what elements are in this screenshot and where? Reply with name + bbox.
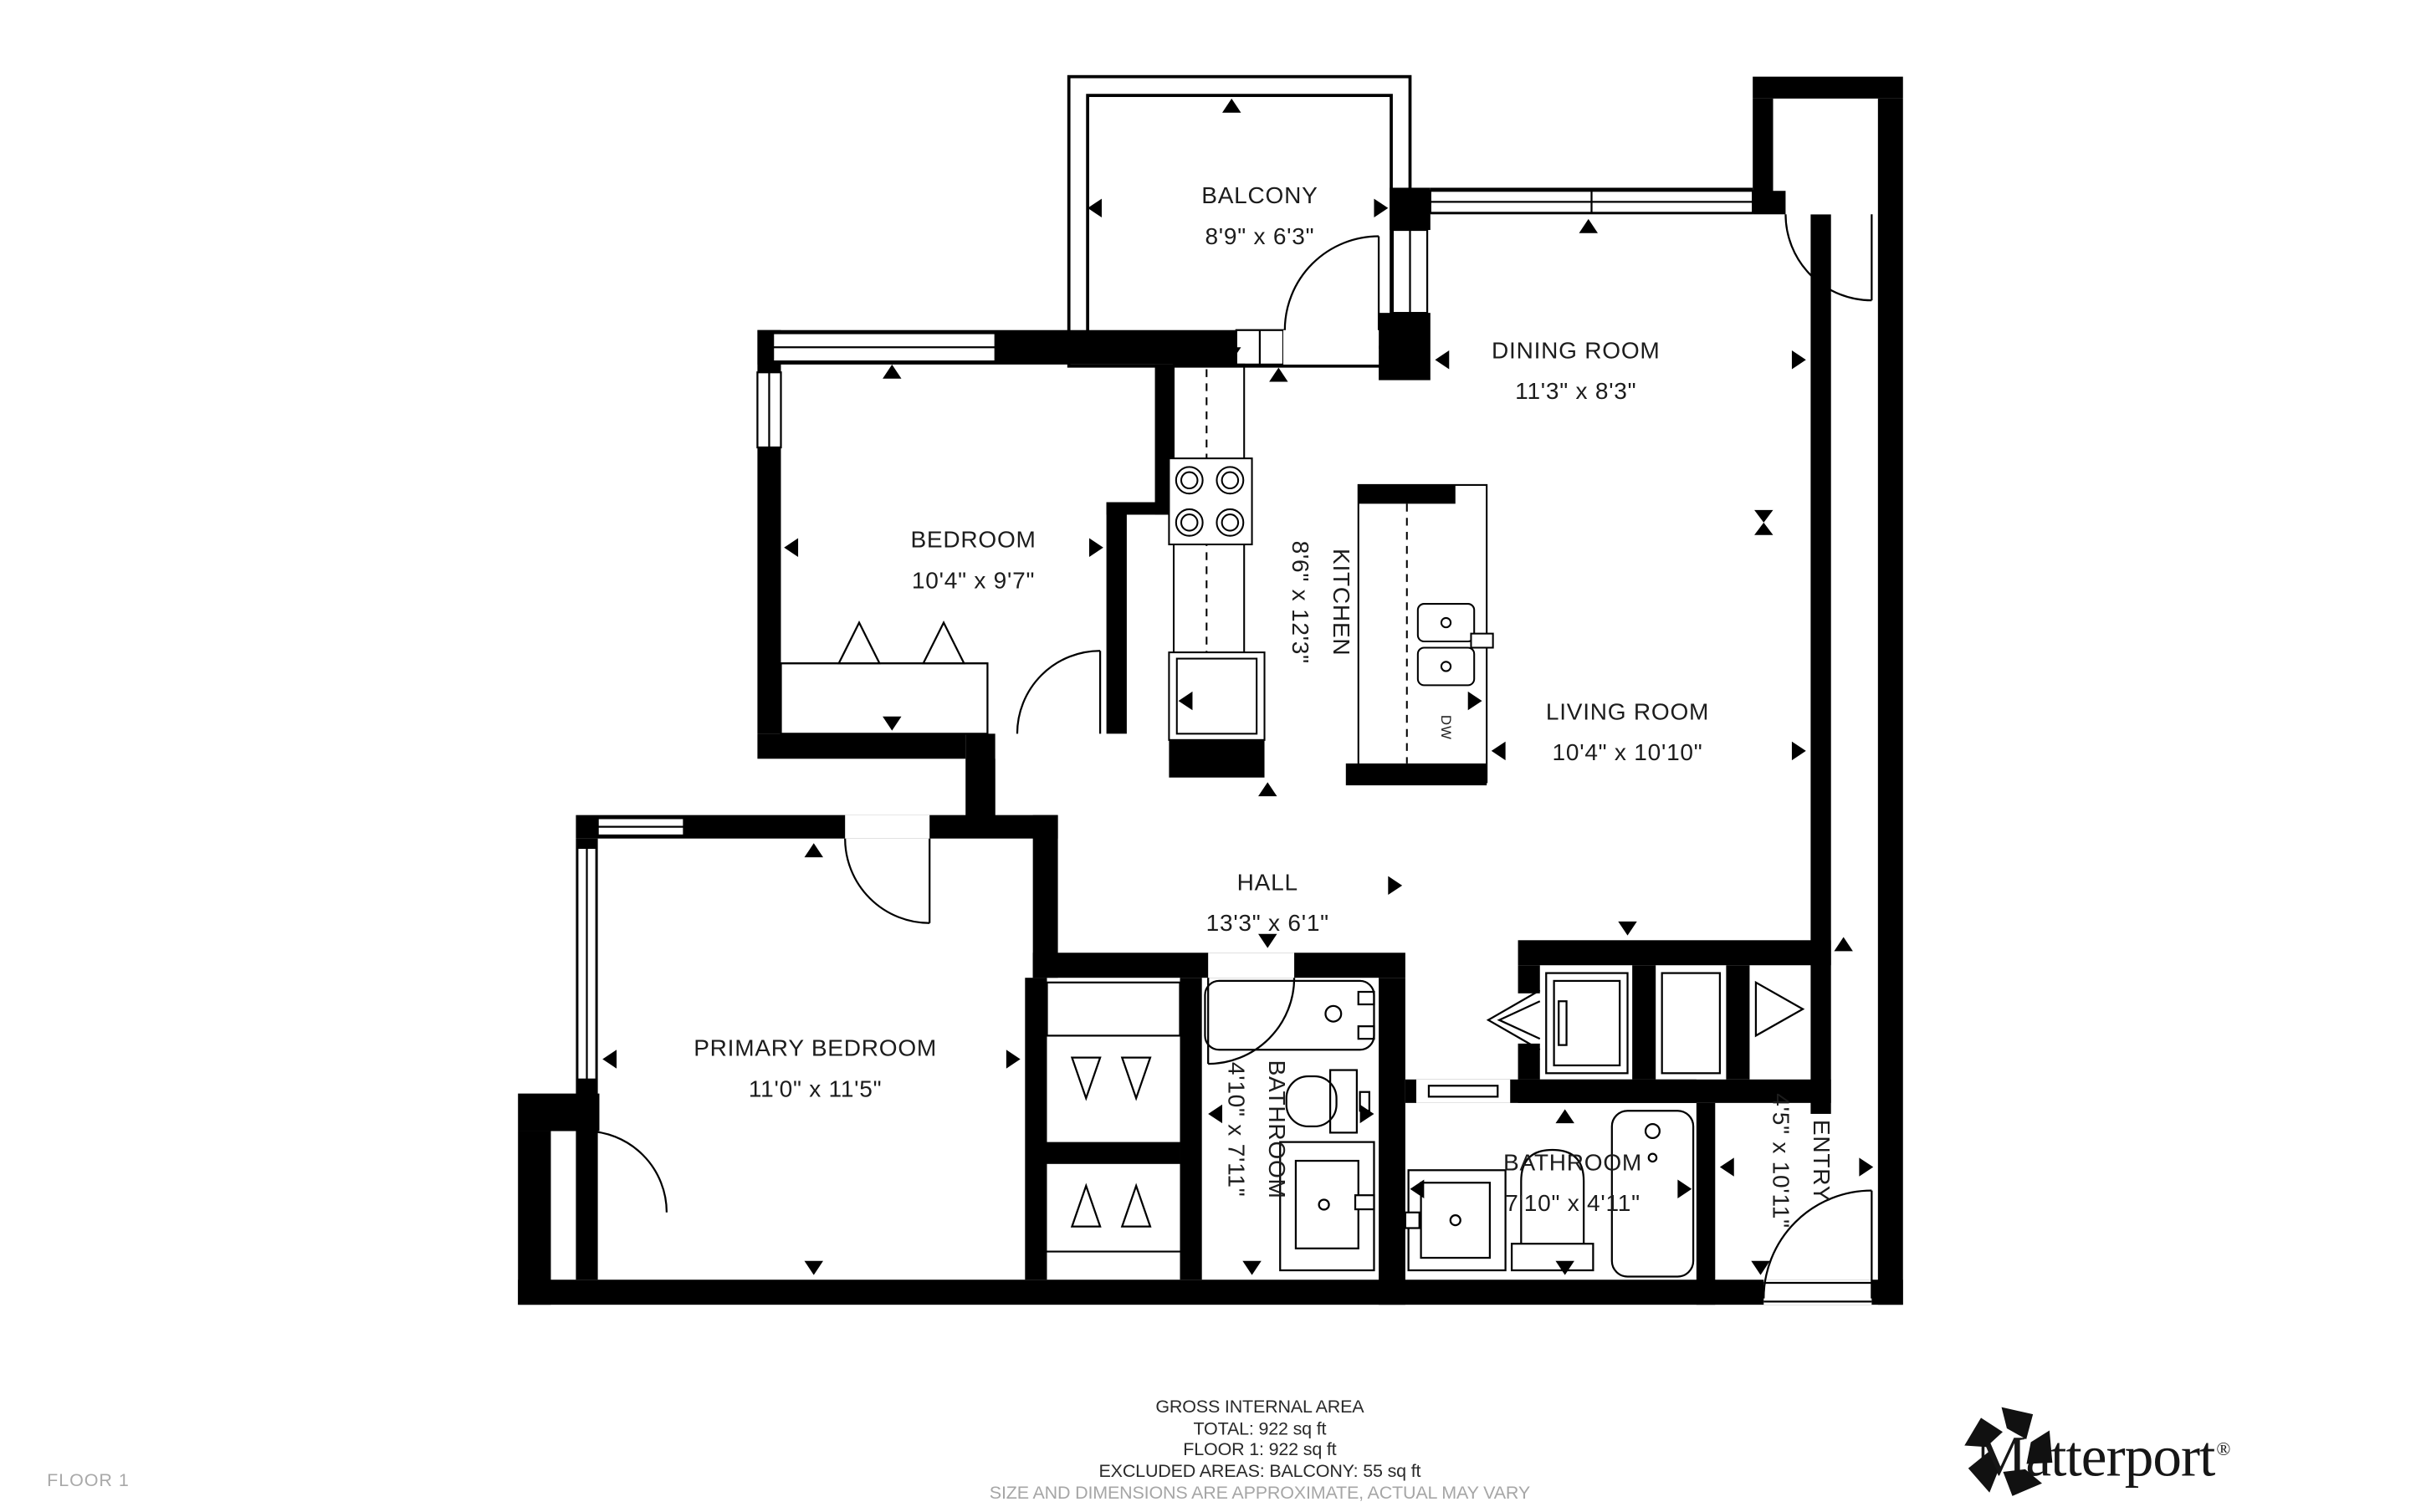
- hanger-icon: [1122, 1058, 1150, 1099]
- room-label-living-room: LIVING ROOM 10'4" x 10'10": [1546, 693, 1709, 774]
- room-label-dining-room: DINING ROOM 11'3" x 8'3": [1492, 332, 1661, 413]
- primary-left-window: [577, 848, 596, 1080]
- hanger-icon: [1072, 1186, 1100, 1227]
- floorplan-page: BALCONY 8'9" x 6'3" DINING ROOM 11'3" x …: [0, 0, 2421, 1512]
- washer-icon: [1546, 973, 1627, 1074]
- room-label-bathroom-main: BATHROOM 7'10" x 4'11": [1503, 1143, 1642, 1224]
- room-label-primary-bedroom: PRIMARY BEDROOM 11'0" x 11'5": [694, 1029, 937, 1111]
- room-label-hall: HALL 13'3" x 6'1": [1206, 864, 1329, 945]
- primary-bedroom-door: [845, 815, 929, 923]
- total-area: TOTAL: 922 sq ft: [990, 1420, 1530, 1442]
- linen-closet: [1662, 973, 1720, 1074]
- laundry-bifold-door: [1488, 990, 1540, 1050]
- floorplan-stage: BALCONY 8'9" x 6'3" DINING ROOM 11'3" x …: [0, 0, 2421, 1512]
- floor-label: FLOOR 1: [47, 1472, 130, 1490]
- hanger-icon: [924, 623, 965, 664]
- dining-top-window: [1431, 191, 1753, 212]
- bathtub-icon: [1205, 981, 1374, 1050]
- bedroom-left-window: [757, 372, 781, 447]
- refrigerator-icon: [1169, 652, 1264, 740]
- hanger-icon: [1072, 1058, 1100, 1099]
- hanger-icon: [1756, 983, 1803, 1036]
- room-label-bathroom-small: BATHROOM 4'10" x 7'11": [1215, 1060, 1296, 1199]
- room-label-balcony: BALCONY 8'9" x 6'3": [1201, 176, 1318, 258]
- bedroom-top-window: [773, 333, 996, 361]
- floor1-area: FLOOR 1: 922 sq ft: [990, 1442, 1530, 1463]
- kitchen-island: [1359, 485, 1493, 782]
- excluded-areas: EXCLUDED AREAS: BALCONY: 55 sq ft: [990, 1463, 1530, 1484]
- bathroom-small-door: [1208, 953, 1294, 1064]
- dishwasher-label: DW: [1438, 715, 1454, 740]
- hanger-icon: [839, 623, 880, 664]
- primary-top-window: [598, 818, 684, 835]
- toilet-icon: [1287, 1070, 1369, 1133]
- stove-icon: [1169, 458, 1251, 544]
- primary-closets: [1047, 983, 1180, 1252]
- bedroom-door: [996, 651, 1107, 759]
- room-label-entry: ENTRY 4'5" x 10'11": [1759, 1093, 1840, 1228]
- matterport-brand: Matterport®: [1959, 1402, 2229, 1505]
- balcony-sidelight-window: [1236, 330, 1283, 365]
- disclaimer: SIZE AND DIMENSIONS ARE APPROXIMATE, ACT…: [990, 1484, 1530, 1506]
- gross-internal-area-title: GROSS INTERNAL AREA: [990, 1398, 1530, 1420]
- room-label-kitchen: KITCHEN 8'6" x 12'3": [1278, 541, 1359, 664]
- balcony-right-window: [1393, 230, 1427, 313]
- area-summary: GROSS INTERNAL AREA TOTAL: 922 sq ft FLO…: [990, 1398, 1530, 1505]
- matterport-logo-icon: [1959, 1402, 2060, 1502]
- room-label-bedroom: BEDROOM 10'4" x 9'7": [910, 521, 1036, 602]
- hanger-icon: [1122, 1186, 1150, 1227]
- bathroom-main-pocket-door: [1416, 1080, 1510, 1103]
- hall-closets: [1546, 973, 1803, 1074]
- island-sink-icon: [1418, 604, 1493, 685]
